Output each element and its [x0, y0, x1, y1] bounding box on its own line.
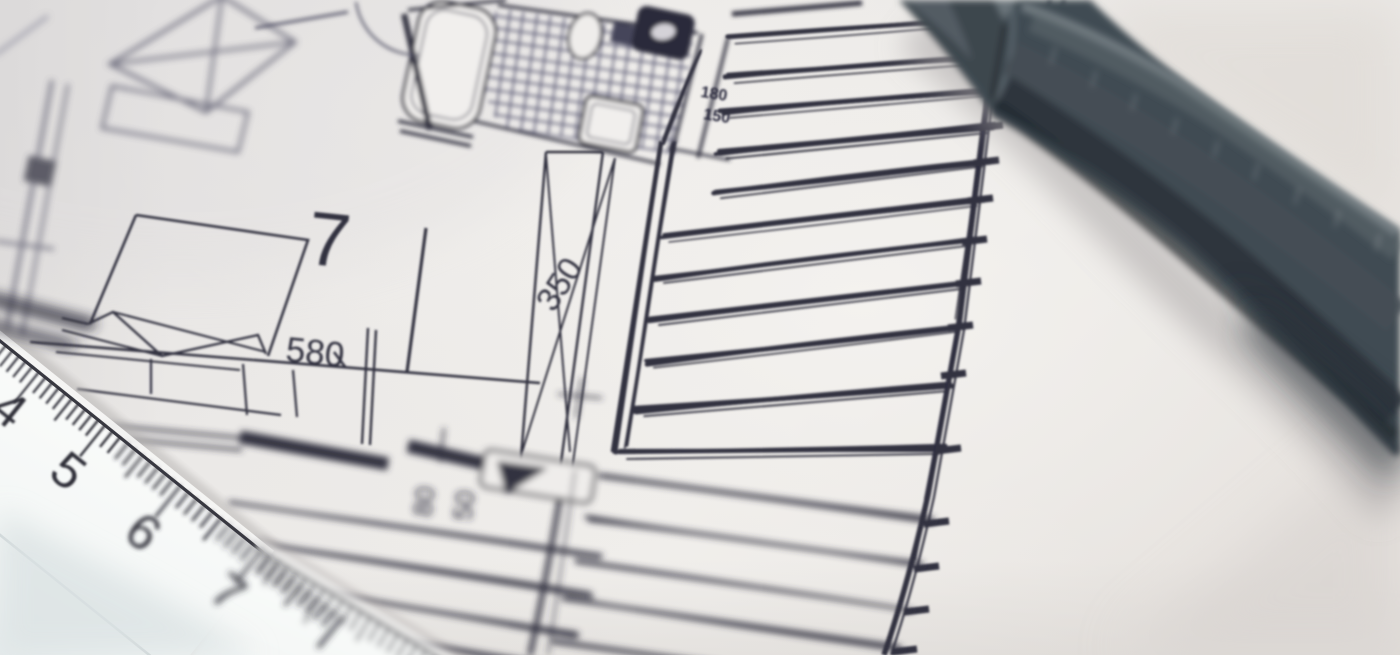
svg-text:50: 50: [447, 489, 480, 522]
svg-text:80: 80: [407, 485, 440, 518]
svg-text:7: 7: [304, 196, 355, 285]
svg-text:580: 580: [284, 330, 346, 375]
